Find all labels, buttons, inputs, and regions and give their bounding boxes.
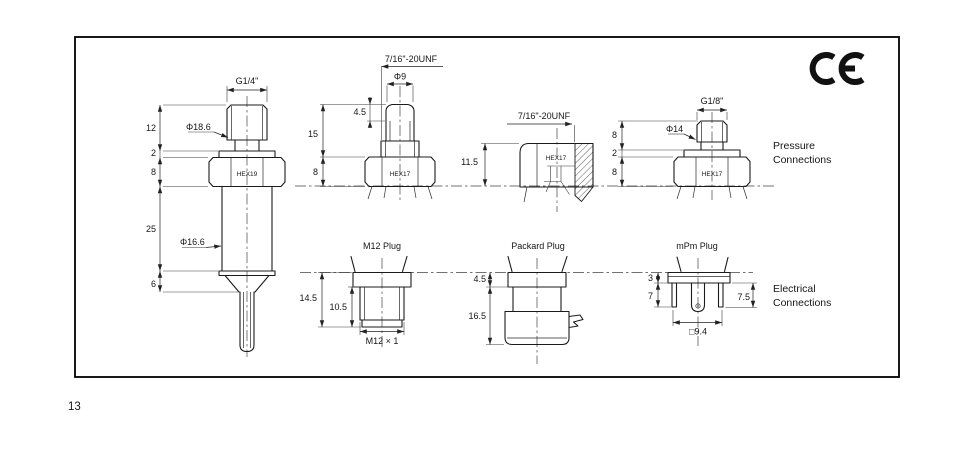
mpm-dim-plate: 3 <box>648 273 653 283</box>
unf-section-hatch <box>575 144 593 202</box>
g14-dim-washer: 2 <box>151 148 156 158</box>
g18-thread-dia-label: Φ14 <box>666 124 683 134</box>
drawing-mpm-plug: mPm Plug 3 7 7.5 □9.4 <box>648 241 757 337</box>
pressure-label-line1: Pressure <box>773 140 815 152</box>
drawing-packard-plug: Packard Plug 4.5 16.5 <box>468 241 583 345</box>
m12-title: M12 Plug <box>363 241 401 251</box>
drawing-g14-pressure-connection: G1/4" Φ18.6 HEX19 Φ16.6 12 2 8 <box>146 76 285 352</box>
electrical-label-line2: Connections <box>773 297 831 309</box>
ce-certification-mark <box>813 55 863 82</box>
unf-front-dim-height: 15 <box>308 129 318 139</box>
m12-thread-label: M12 × 1 <box>366 336 399 346</box>
drawing-g18-pressure-connection: G1/8" Φ14 HEX17 8 2 8 <box>612 96 750 199</box>
mpm-plate <box>668 273 730 284</box>
page-number: 13 <box>68 401 81 413</box>
g18-dim-thread: 8 <box>612 130 617 140</box>
electrical-label-line1: Electrical <box>773 283 816 295</box>
g18-dim-washer: 2 <box>612 148 617 158</box>
drawing-m12-plug: M12 Plug 14.5 10.5 M12 × 1 <box>299 241 411 346</box>
unf-front-tip-height: 4.5 <box>353 107 366 117</box>
g14-thread-size-label: G1/4" <box>236 76 259 86</box>
unf-front-hex-label: HEX17 <box>390 171 411 178</box>
g14-dim-hex: 8 <box>151 167 156 177</box>
mpm-dim-square: □9.4 <box>689 327 707 337</box>
drawing-unf-front-pressure-connection: 7/16"-20UNF Φ9 4.5 HEX17 15 8 <box>308 54 443 199</box>
packard-dim-flange: 4.5 <box>473 274 486 284</box>
mpm-dim-pins-right: 7.5 <box>737 292 750 302</box>
packard-dim-body: 16.5 <box>468 311 486 321</box>
unf-front-dim-hex: 8 <box>313 167 318 177</box>
g14-dia-upper-label: Φ18.6 <box>186 122 211 132</box>
g14-dim-thread: 12 <box>146 123 156 133</box>
m12-dim-thread: 10.5 <box>329 302 347 312</box>
unf-section-dim-height: 11.5 <box>461 157 478 167</box>
g18-thread-size-label: G1/8" <box>701 96 724 106</box>
mpm-left-pin <box>672 283 677 307</box>
mpm-dim-pins: 7 <box>648 291 653 301</box>
m12-dim-total: 14.5 <box>299 293 317 303</box>
g14-dim-body: 25 <box>146 224 156 234</box>
mpm-right-pin <box>719 283 724 307</box>
pressure-label-line2: Connections <box>773 154 831 166</box>
electrical-connections-label: Electrical Connections <box>773 283 831 309</box>
pressure-connections-label: Pressure Connections <box>773 140 831 166</box>
g18-dim-hex: 8 <box>612 167 617 177</box>
g14-hex-label: HEX19 <box>237 171 258 178</box>
datasheet-page: G1/4" Φ18.6 HEX19 Φ16.6 12 2 8 <box>0 0 972 450</box>
unf-section-hex-label: HEX17 <box>546 155 567 162</box>
packard-latch-tab <box>569 315 583 328</box>
g14-dia-lower-label: Φ16.6 <box>180 237 205 247</box>
g14-dim-tip: 6 <box>151 279 156 289</box>
mpm-title: mPm Plug <box>676 241 718 251</box>
g18-hex-label: HEX17 <box>702 171 723 178</box>
unf-section-thread-label: 7/16"-20UNF <box>518 111 571 121</box>
unf-front-thread-label: 7/16"-20UNF <box>385 54 438 64</box>
packard-title: Packard Plug <box>511 241 565 251</box>
drawing-unf-section-pressure-connection: 7/16"-20UNF HEX17 11.5 <box>461 111 593 202</box>
unf-front-tip-dia-label: Φ9 <box>394 72 406 82</box>
drawing-frame <box>75 37 899 377</box>
